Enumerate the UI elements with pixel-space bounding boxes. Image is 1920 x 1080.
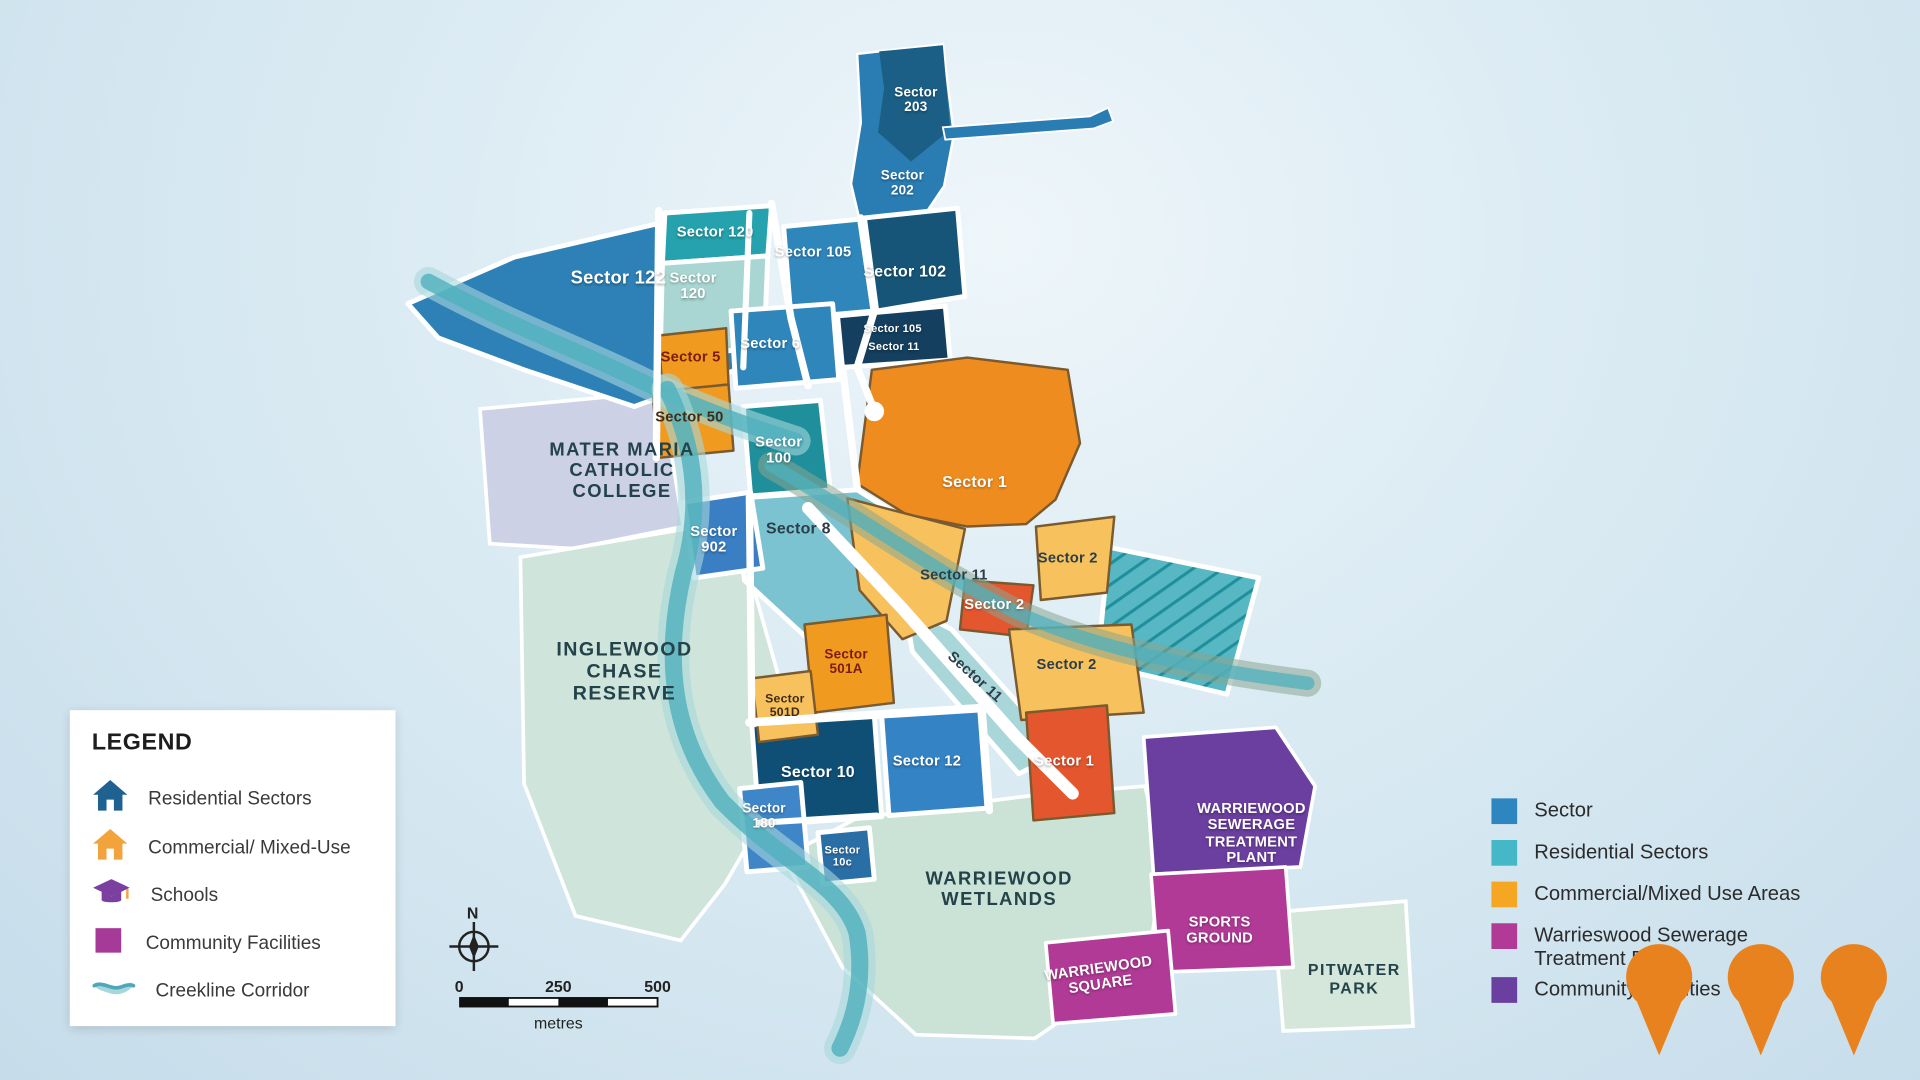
legend-item-label: Creekline Corridor xyxy=(156,980,310,1002)
swatch-sewerage xyxy=(1491,923,1517,949)
wave-icon xyxy=(92,975,136,1008)
square-icon xyxy=(92,926,126,962)
legend-item-label: Community Facilities xyxy=(146,932,321,954)
map-pin-icon xyxy=(1821,944,1887,1055)
map-stage: Sector 203 Sector 202 Sector 120 Sector … xyxy=(0,0,1920,1080)
legend-item-residential: Residential Sectors xyxy=(92,779,312,819)
swatch-sector xyxy=(1491,798,1517,824)
house-icon xyxy=(92,779,129,819)
right-legend-label: Residential Sectors xyxy=(1534,840,1708,864)
swatch-residential xyxy=(1491,840,1517,866)
map-pin-icon xyxy=(1728,944,1794,1055)
legend-item-label: Commercial/ Mixed-Use xyxy=(148,837,351,859)
legend-card: LEGEND Residential Sectors Commercial/ M… xyxy=(70,710,396,1026)
graduation-cap-icon xyxy=(92,877,131,915)
region-sector-12 xyxy=(882,708,987,816)
legend-item-label: Residential Sectors xyxy=(148,788,312,810)
scale-tick-0: 0 xyxy=(455,977,464,995)
right-legend-item-commercial: Commercial/Mixed Use Areas xyxy=(1491,882,1800,908)
swatch-commercial xyxy=(1491,882,1517,908)
region-inglewood-reserve xyxy=(520,529,781,940)
scale-unit: metres xyxy=(534,1014,583,1032)
region-mater-maria xyxy=(480,392,683,549)
region-sector-1 xyxy=(857,358,1080,527)
swatch-community xyxy=(1491,977,1517,1003)
legend-item-label: Schools xyxy=(151,885,219,907)
region-sector-501a xyxy=(804,615,893,713)
legend-item-schools: Schools xyxy=(92,877,218,915)
region-sports-ground xyxy=(1151,867,1293,972)
scale-tick-250: 250 xyxy=(545,977,572,995)
region-warriewood-square xyxy=(1046,931,1176,1024)
region-sewerage-plant xyxy=(1144,727,1315,874)
map-pin-group xyxy=(1604,937,1920,1072)
legend-title: LEGEND xyxy=(92,730,193,757)
region-sector-2-east xyxy=(1036,517,1114,600)
scale-tick-500: 500 xyxy=(644,977,671,995)
house-icon xyxy=(92,828,129,868)
region-sector-105-11-box xyxy=(838,306,951,367)
legend-item-commercial: Commercial/ Mixed-Use xyxy=(92,828,351,868)
scale-bar xyxy=(459,996,660,1011)
region-connector-strip xyxy=(943,108,1113,140)
legend-item-creekline: Creekline Corridor xyxy=(92,975,310,1008)
compass-icon xyxy=(443,918,504,974)
right-legend-item-sector: Sector xyxy=(1491,798,1592,824)
map-pin-icon xyxy=(1626,944,1692,1055)
legend-item-community: Community Facilities xyxy=(92,926,321,962)
right-legend-label: Commercial/Mixed Use Areas xyxy=(1534,882,1800,906)
region-sector-102 xyxy=(864,208,964,311)
right-legend-label: Sector xyxy=(1534,798,1592,822)
right-legend-item-residential: Residential Sectors xyxy=(1491,840,1708,866)
region-sector-501d xyxy=(752,671,818,742)
